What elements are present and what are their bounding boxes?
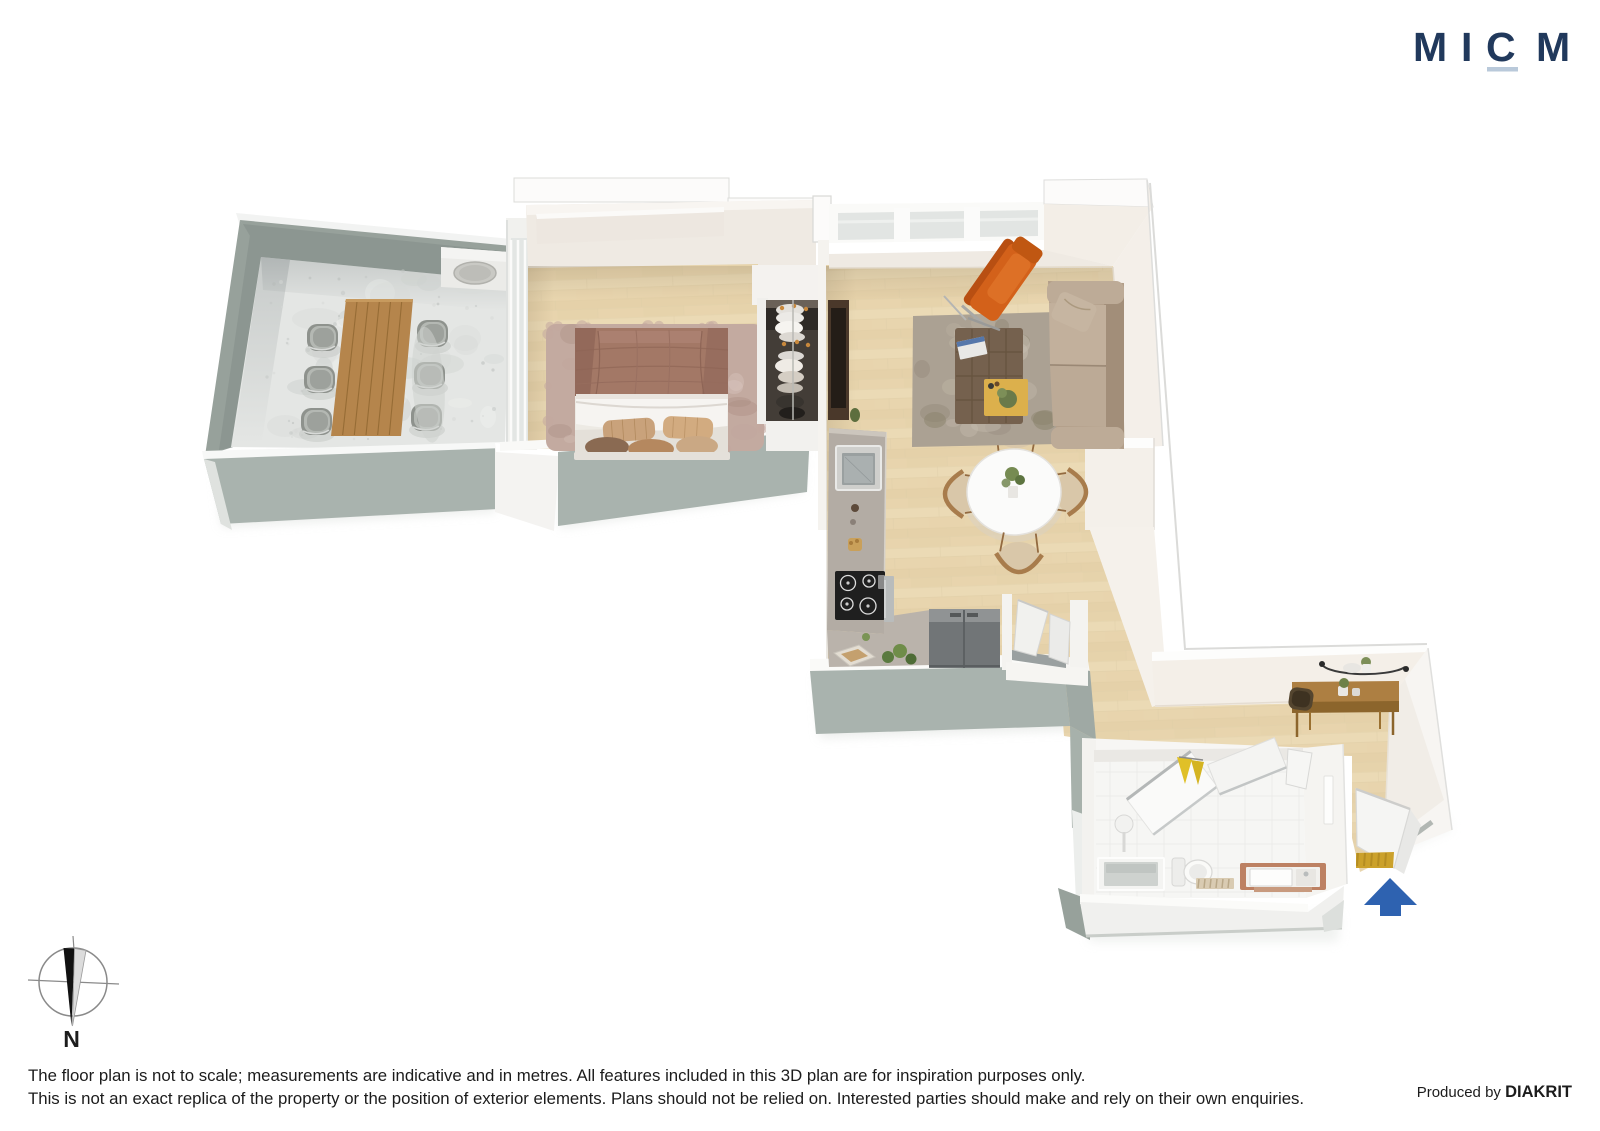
svg-text:This is not an exact replica o: This is not an exact replica of the prop… [28,1089,1304,1108]
svg-text:M: M [1413,24,1447,70]
svg-text:C: C [1486,24,1516,70]
svg-text:M: M [1536,24,1570,70]
svg-text:The floor plan is not to scale: The floor plan is not to scale; measurem… [28,1066,1085,1085]
svg-text:I: I [1461,24,1472,70]
svg-text:N: N [63,1026,80,1052]
svg-text:Produced by DIAKRIT: Produced by DIAKRIT [1417,1083,1572,1101]
